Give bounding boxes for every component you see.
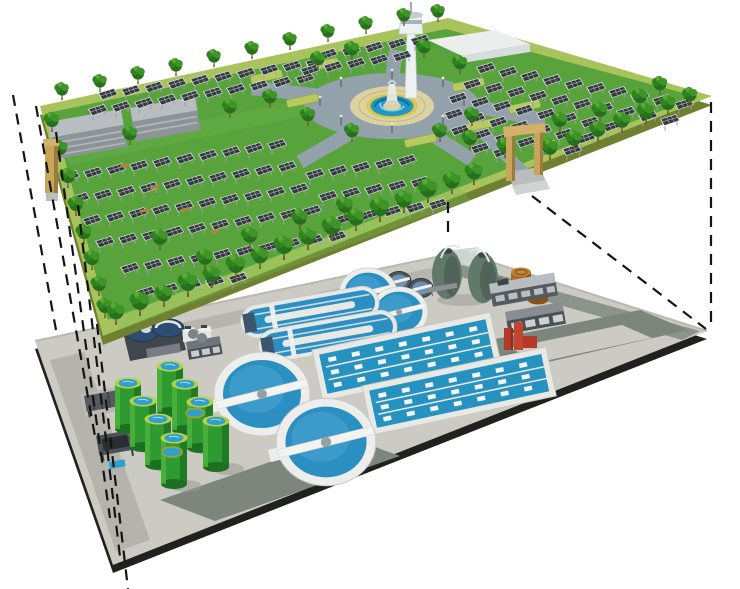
cutaway-illustration [0,0,740,589]
illustration-canvas [0,0,740,589]
entrance-gate-left [43,139,59,201]
